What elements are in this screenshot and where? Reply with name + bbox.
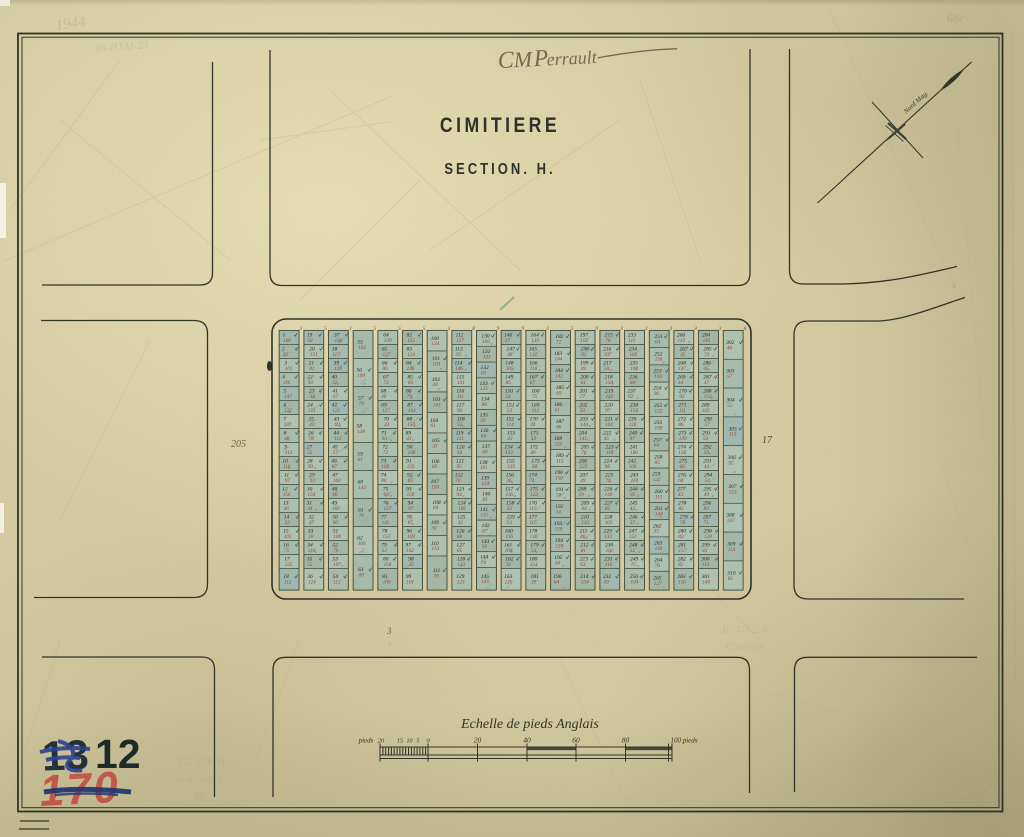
svg-text:88: 88: [457, 534, 463, 540]
svg-text:127: 127: [456, 338, 464, 344]
svg-text:131: 131: [483, 355, 491, 361]
svg-text:30: 30: [431, 526, 437, 532]
svg-text:61: 61: [481, 370, 487, 376]
svg-text:90: 90: [457, 408, 463, 414]
svg-text:33: 33: [432, 444, 438, 450]
svg-text:109: 109: [655, 426, 663, 432]
svg-text:8: 8: [472, 326, 475, 332]
svg-text:112: 112: [284, 580, 292, 586]
svg-text:103: 103: [407, 534, 415, 540]
svg-text:116: 116: [506, 492, 514, 498]
svg-text:81: 81: [581, 548, 587, 554]
svg-text:147: 147: [284, 393, 292, 400]
svg-text:9: 9: [595, 326, 598, 332]
svg-text:84: 84: [581, 505, 587, 512]
svg-text:103: 103: [605, 520, 613, 526]
svg-text:44: 44: [307, 505, 313, 512]
svg-text:Echelle de pieds Anglais: Echelle de pieds Anglais: [460, 717, 599, 732]
svg-text:125: 125: [285, 562, 293, 568]
svg-text:80: 80: [381, 478, 387, 484]
svg-text:9: 9: [521, 326, 524, 332]
svg-text:61: 61: [358, 457, 364, 463]
svg-text:80: 80: [622, 736, 630, 745]
svg-text:50: 50: [457, 450, 463, 456]
svg-text:139: 139: [407, 464, 415, 470]
svg-text:119: 119: [678, 338, 686, 344]
svg-text:111: 111: [457, 394, 464, 400]
svg-text:118: 118: [606, 450, 614, 456]
svg-text:79: 79: [333, 548, 339, 554]
svg-text:17: 17: [762, 435, 773, 446]
svg-text:102: 102: [358, 345, 366, 351]
svg-text:67: 67: [333, 394, 339, 400]
svg-text:81: 81: [581, 352, 587, 358]
svg-text:5: 5: [373, 326, 376, 332]
svg-text:144: 144: [580, 421, 588, 428]
svg-text:95: 95: [457, 464, 463, 470]
svg-text:115: 115: [481, 513, 489, 519]
svg-text:115: 115: [556, 458, 564, 464]
svg-text:136: 136: [408, 450, 416, 456]
svg-text:B. 371.2.8: B. 371.2.8: [722, 624, 768, 636]
svg-text:109: 109: [357, 373, 365, 379]
svg-text:46: 46: [284, 505, 290, 512]
svg-text:136: 136: [678, 580, 686, 586]
svg-text:49: 49: [704, 491, 710, 498]
svg-text:150: 150: [431, 485, 439, 491]
svg-text:123: 123: [580, 464, 588, 470]
svg-text:5: 5: [423, 326, 426, 332]
svg-text:42: 42: [458, 519, 464, 526]
svg-text:106: 106: [630, 450, 638, 456]
svg-text:142: 142: [406, 547, 414, 554]
svg-text:83: 83: [704, 506, 710, 512]
svg-text:44: 44: [530, 421, 536, 428]
svg-text:77: 77: [580, 394, 586, 400]
svg-text:35: 35: [654, 529, 660, 535]
svg-text:116: 116: [703, 338, 711, 344]
svg-text:60: 60: [194, 790, 206, 802]
svg-text:52: 52: [630, 548, 636, 554]
svg-text:134: 134: [431, 340, 439, 347]
svg-text:65: 65: [556, 390, 562, 396]
svg-text:63: 63: [580, 562, 586, 568]
svg-text:104: 104: [605, 421, 613, 428]
svg-text:9: 9: [497, 326, 500, 332]
svg-text:125: 125: [480, 386, 488, 392]
svg-text:78: 78: [433, 573, 439, 579]
svg-text:61: 61: [555, 407, 561, 413]
svg-text:133: 133: [604, 534, 612, 540]
svg-text:104: 104: [630, 579, 638, 586]
svg-text:120: 120: [555, 526, 563, 532]
svg-text:55: 55: [630, 520, 636, 526]
svg-text:151: 151: [310, 352, 318, 358]
svg-text:116: 116: [605, 562, 613, 568]
svg-text:55: 55: [307, 562, 313, 568]
svg-text:67: 67: [482, 528, 488, 534]
svg-text:59: 59: [480, 418, 486, 424]
svg-text:43: 43: [702, 547, 708, 554]
svg-text:129: 129: [384, 338, 392, 344]
svg-text:79: 79: [359, 401, 365, 407]
svg-text:131: 131: [457, 380, 465, 386]
svg-text:124: 124: [308, 579, 316, 586]
svg-text:141: 141: [382, 519, 390, 526]
svg-text:101: 101: [406, 580, 414, 586]
svg-text:61: 61: [431, 423, 437, 429]
svg-text:pieds: pieds: [358, 737, 374, 745]
svg-text:Cimetiere: Cimetiere: [174, 772, 222, 786]
svg-text:98: 98: [605, 464, 611, 470]
svg-text:64: 64: [654, 442, 660, 449]
svg-text:149: 149: [605, 491, 613, 498]
svg-text:150: 150: [630, 408, 638, 414]
svg-text:64: 64: [433, 504, 439, 511]
svg-text:48: 48: [727, 344, 733, 351]
svg-text:103: 103: [702, 408, 710, 414]
svg-text:160: 160: [333, 478, 341, 484]
svg-text:50: 50: [604, 366, 610, 372]
svg-text:93: 93: [308, 380, 314, 386]
svg-text:31: 31: [506, 562, 512, 568]
svg-text:106: 106: [333, 534, 341, 540]
svg-text:118: 118: [655, 546, 663, 552]
svg-text:116: 116: [283, 380, 291, 386]
svg-text:39: 39: [456, 352, 462, 358]
svg-text:86: 86: [556, 424, 562, 430]
svg-text:147: 147: [678, 365, 686, 372]
svg-text:126: 126: [629, 422, 637, 428]
svg-text:32: 32: [284, 520, 290, 526]
svg-text:94: 94: [457, 491, 463, 498]
svg-text:105: 105: [458, 506, 466, 512]
svg-text:8: 8: [744, 326, 747, 332]
svg-text:107: 107: [333, 562, 341, 568]
svg-text:Cimetiere: Cimetiere: [726, 642, 766, 653]
svg-text:151: 151: [629, 534, 637, 540]
svg-text:75: 75: [532, 394, 538, 400]
svg-text:15: 15: [397, 739, 403, 745]
svg-text:85: 85: [605, 506, 611, 512]
svg-text:85: 85: [679, 506, 685, 512]
svg-text:5: 5: [398, 326, 401, 332]
svg-text:80: 80: [333, 520, 339, 526]
svg-text:154: 154: [308, 491, 316, 498]
svg-text:50: 50: [580, 408, 586, 414]
svg-text:160: 160: [332, 506, 340, 512]
svg-text:85: 85: [506, 380, 512, 386]
svg-text:124: 124: [481, 480, 489, 487]
svg-text:74: 74: [529, 477, 535, 484]
svg-text:140: 140: [702, 579, 710, 586]
svg-text:121: 121: [332, 408, 340, 414]
svg-text:20: 20: [378, 738, 385, 745]
svg-text:49: 49: [580, 477, 586, 484]
svg-text:124: 124: [407, 351, 415, 358]
svg-text:154: 154: [530, 561, 538, 568]
svg-text:113: 113: [655, 494, 663, 500]
svg-text:137: 137: [384, 506, 392, 512]
svg-text:43: 43: [384, 421, 390, 428]
svg-text:78: 78: [309, 436, 315, 442]
svg-text:97: 97: [630, 436, 636, 442]
svg-text:43: 43: [507, 435, 513, 442]
svg-text:76: 76: [605, 338, 611, 344]
svg-text:72: 72: [384, 380, 390, 386]
svg-text:101: 101: [480, 465, 488, 471]
svg-text:130: 130: [530, 534, 538, 540]
svg-text:87: 87: [332, 464, 338, 470]
svg-text:40: 40: [523, 736, 531, 745]
svg-text:64: 64: [481, 433, 487, 440]
svg-text:5: 5: [571, 326, 574, 332]
svg-text:69: 69: [359, 573, 365, 579]
svg-text:72: 72: [556, 339, 562, 345]
svg-text:143: 143: [358, 484, 366, 491]
svg-text:114: 114: [728, 546, 736, 553]
svg-text:50: 50: [703, 436, 709, 442]
svg-text:44: 44: [704, 463, 710, 470]
svg-text:136: 136: [678, 450, 686, 456]
svg-text:35: 35: [680, 352, 686, 358]
svg-text:43: 43: [678, 491, 684, 498]
svg-text:139: 139: [654, 374, 662, 380]
svg-text:67: 67: [530, 380, 536, 386]
svg-text:10: 10: [407, 739, 413, 745]
svg-text:86: 86: [678, 422, 684, 428]
svg-text:57: 57: [333, 450, 339, 456]
svg-text:37: 37: [505, 338, 511, 344]
svg-text:72: 72: [383, 450, 389, 456]
svg-text:120: 120: [505, 580, 513, 586]
svg-text:150: 150: [407, 492, 415, 498]
svg-text:CIMITIERE: CIMITIERE: [440, 113, 560, 137]
svg-text:145: 145: [481, 578, 489, 585]
svg-text:105: 105: [506, 366, 514, 372]
svg-text:76: 76: [655, 563, 661, 569]
svg-text:85: 85: [408, 380, 414, 386]
svg-text:142: 142: [555, 372, 563, 379]
svg-text:143: 143: [581, 519, 589, 526]
svg-text:100: 100: [283, 338, 291, 344]
svg-text:45: 45: [604, 435, 610, 442]
svg-text:68c: 68c: [947, 11, 965, 25]
svg-text:107: 107: [604, 352, 612, 358]
svg-text:121: 121: [456, 436, 464, 442]
svg-text:47: 47: [704, 379, 710, 386]
svg-text:157: 157: [679, 548, 687, 554]
svg-text:34: 34: [556, 508, 562, 515]
svg-text:69: 69: [482, 449, 488, 455]
svg-text:70: 70: [359, 513, 365, 519]
svg-text:153: 153: [729, 489, 737, 495]
svg-text:68: 68: [532, 464, 538, 470]
svg-text:115: 115: [334, 436, 342, 442]
svg-text:116: 116: [530, 366, 538, 372]
svg-text:153: 153: [383, 534, 391, 540]
svg-text:156: 156: [384, 562, 392, 568]
svg-text:59: 59: [579, 492, 585, 498]
svg-text:65: 65: [457, 548, 463, 554]
svg-text:57: 57: [727, 374, 733, 380]
svg-text:86: 86: [383, 366, 389, 372]
svg-text:34: 34: [678, 379, 684, 386]
svg-text:146: 146: [455, 365, 463, 372]
svg-text:5: 5: [417, 739, 420, 745]
svg-text:104: 104: [408, 407, 416, 414]
svg-text:93: 93: [382, 436, 388, 442]
svg-text:69: 69: [432, 464, 438, 470]
svg-text:155: 155: [407, 338, 415, 344]
svg-text:113: 113: [729, 432, 737, 438]
svg-text:153: 153: [505, 450, 513, 456]
svg-text:54: 54: [505, 393, 511, 400]
svg-text:39: 39: [531, 580, 537, 586]
svg-text:75: 75: [284, 548, 290, 554]
svg-text:101: 101: [285, 366, 293, 372]
svg-text:52: 52: [727, 403, 733, 409]
svg-text:60: 60: [572, 736, 580, 745]
svg-text:58: 58: [482, 544, 488, 550]
svg-text:3: 3: [386, 626, 392, 636]
svg-text:86: 86: [482, 402, 488, 408]
svg-text:122: 122: [655, 408, 663, 414]
svg-text:153: 153: [432, 546, 440, 552]
svg-text:138: 138: [334, 366, 342, 372]
svg-text:117: 117: [332, 352, 340, 358]
svg-text:90: 90: [654, 391, 660, 397]
svg-text:53: 53: [507, 408, 513, 414]
svg-text:128: 128: [704, 534, 712, 540]
svg-text:122: 122: [529, 352, 537, 358]
svg-text:71: 71: [704, 520, 710, 526]
svg-text:115: 115: [529, 506, 537, 512]
svg-text:100: 100: [629, 464, 637, 470]
svg-text:111: 111: [628, 338, 635, 344]
svg-text:x: x: [951, 280, 956, 290]
svg-text:90: 90: [308, 464, 314, 470]
svg-text:55: 55: [307, 450, 313, 456]
svg-text:53: 53: [531, 436, 537, 442]
svg-text:116: 116: [655, 357, 663, 363]
svg-text:123: 123: [457, 580, 465, 586]
svg-text:105: 105: [284, 534, 292, 540]
svg-text:34: 34: [555, 559, 561, 566]
svg-text:.: .: [389, 638, 391, 646]
svg-text:147: 147: [727, 517, 735, 524]
svg-text:81: 81: [728, 576, 734, 582]
svg-text:138: 138: [357, 429, 365, 435]
svg-text:111: 111: [679, 408, 686, 414]
svg-text:53: 53: [507, 506, 513, 512]
svg-text:159: 159: [555, 543, 563, 549]
svg-text:113: 113: [285, 450, 293, 456]
svg-text:97: 97: [605, 408, 611, 414]
svg-text:127: 127: [382, 408, 390, 414]
svg-text:125: 125: [555, 441, 563, 447]
svg-text:112: 112: [333, 580, 341, 586]
svg-text:B-371.2.3: B-371.2.3: [178, 754, 225, 768]
svg-text:97: 97: [285, 478, 291, 484]
svg-text:109: 109: [381, 464, 389, 470]
svg-text:139: 139: [507, 464, 515, 470]
svg-text:61: 61: [581, 380, 587, 386]
svg-text:39: 39: [581, 366, 587, 372]
svg-text:113: 113: [702, 562, 710, 568]
svg-text:43: 43: [406, 435, 412, 442]
svg-text:5: 5: [324, 326, 327, 332]
svg-text:39: 39: [604, 580, 610, 586]
svg-text:114: 114: [506, 421, 514, 428]
svg-text:20: 20: [474, 736, 482, 745]
svg-text:115: 115: [529, 520, 537, 526]
svg-text:123: 123: [530, 492, 538, 498]
svg-text:70: 70: [455, 478, 461, 484]
svg-text:40: 40: [530, 449, 536, 456]
svg-text:143: 143: [433, 402, 441, 409]
svg-text:SECTION. H.: SECTION. H.: [444, 161, 555, 178]
svg-text:100: 100: [358, 541, 366, 547]
svg-text:75: 75: [631, 562, 637, 568]
svg-text:43: 43: [309, 421, 315, 428]
svg-text:50: 50: [307, 338, 313, 344]
svg-text:205: 205: [231, 439, 246, 450]
svg-text:105: 105: [482, 339, 490, 345]
svg-text:144: 144: [555, 355, 563, 362]
svg-text:50: 50: [308, 534, 314, 540]
svg-text:85: 85: [655, 460, 661, 466]
svg-text:156: 156: [283, 492, 291, 498]
svg-text:errault: errault: [546, 47, 598, 70]
svg-text:52: 52: [382, 548, 388, 554]
svg-text:81: 81: [309, 366, 315, 372]
svg-text:97: 97: [408, 506, 414, 512]
svg-text:73: 73: [704, 352, 710, 358]
svg-text:64: 64: [554, 579, 560, 586]
svg-text:M: M: [512, 46, 534, 72]
svg-text:100 pieds: 100 pieds: [670, 737, 697, 745]
svg-text:134: 134: [581, 579, 589, 586]
svg-text:127: 127: [654, 581, 662, 587]
svg-text:92: 92: [679, 394, 685, 400]
svg-text:78: 78: [680, 520, 686, 526]
svg-text:66: 66: [680, 464, 686, 470]
svg-text:139: 139: [679, 436, 687, 442]
